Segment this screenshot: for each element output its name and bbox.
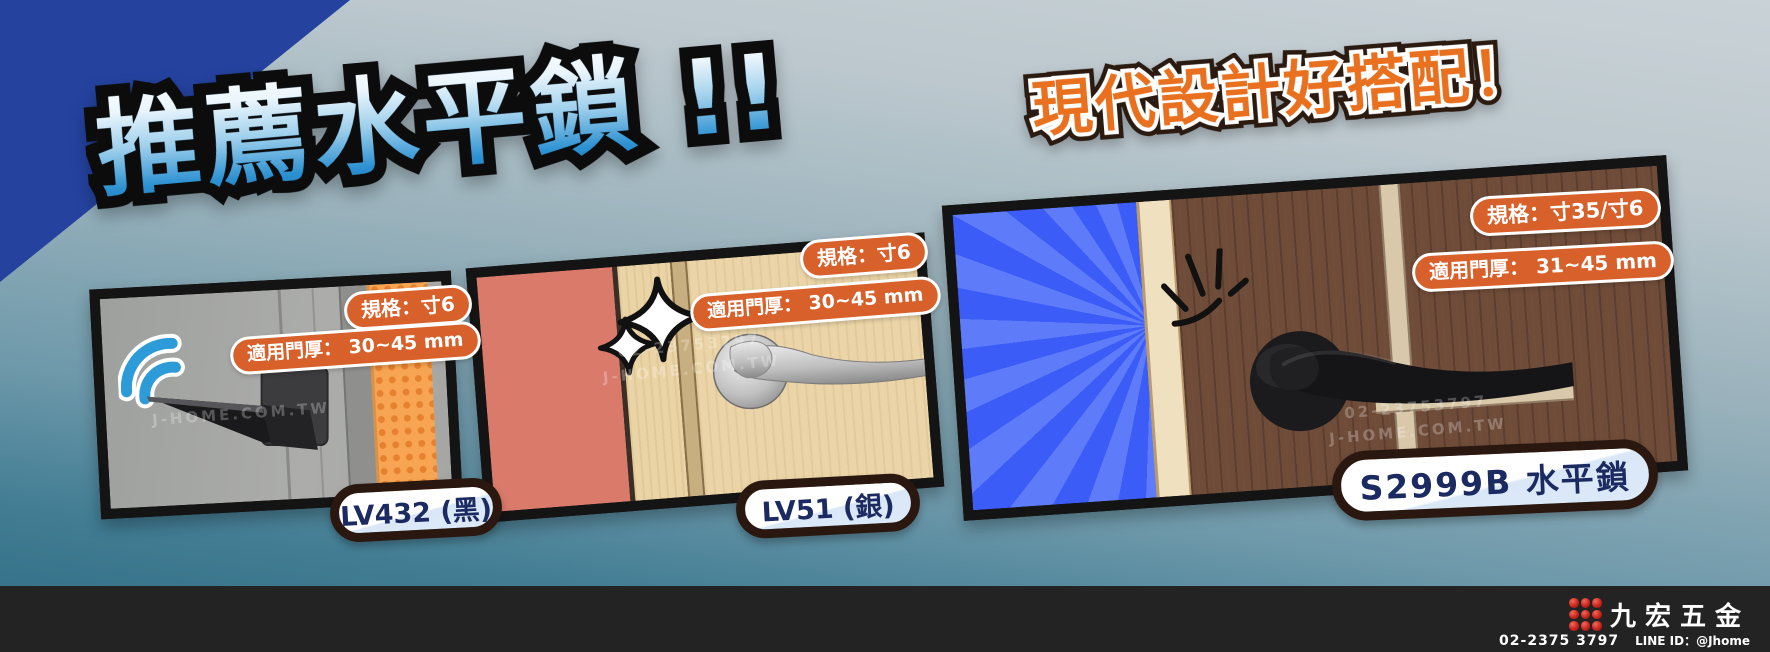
footer-bar: 九宏五金 02-2375 3797 LINE ID：@Jhome [0, 586, 1770, 652]
sub-headline: 現代設計好搭配！ 現代設計好搭配！ 現代設計好搭配！ [1029, 23, 1538, 149]
brand-logo: 九宏五金 [1569, 596, 1750, 633]
blue-sunburst-background [953, 202, 1157, 510]
phone-number: 02-2375 3797 [1499, 633, 1619, 649]
subhead-fill: 現代設計好搭配！ [1029, 23, 1538, 149]
product-label-s2999b: S2999B 水平鎖 [1331, 438, 1660, 522]
brand-name: 九宏五金 [1610, 596, 1750, 633]
promo-banner: 推薦水平鎖 !! 推薦水平鎖 !! 推薦水平鎖 !! 現代設計好搭配！ 現代設計… [0, 0, 1770, 652]
contact-info: 02-2375 3797 LINE ID：@Jhome [1499, 632, 1750, 649]
product-label-lv432: LV432 (黑) [329, 477, 504, 544]
product-label-lv51: LV51 (銀) [735, 472, 922, 540]
line-id: LINE ID：@Jhome [1635, 632, 1750, 649]
logo-dots-icon [1569, 598, 1602, 631]
